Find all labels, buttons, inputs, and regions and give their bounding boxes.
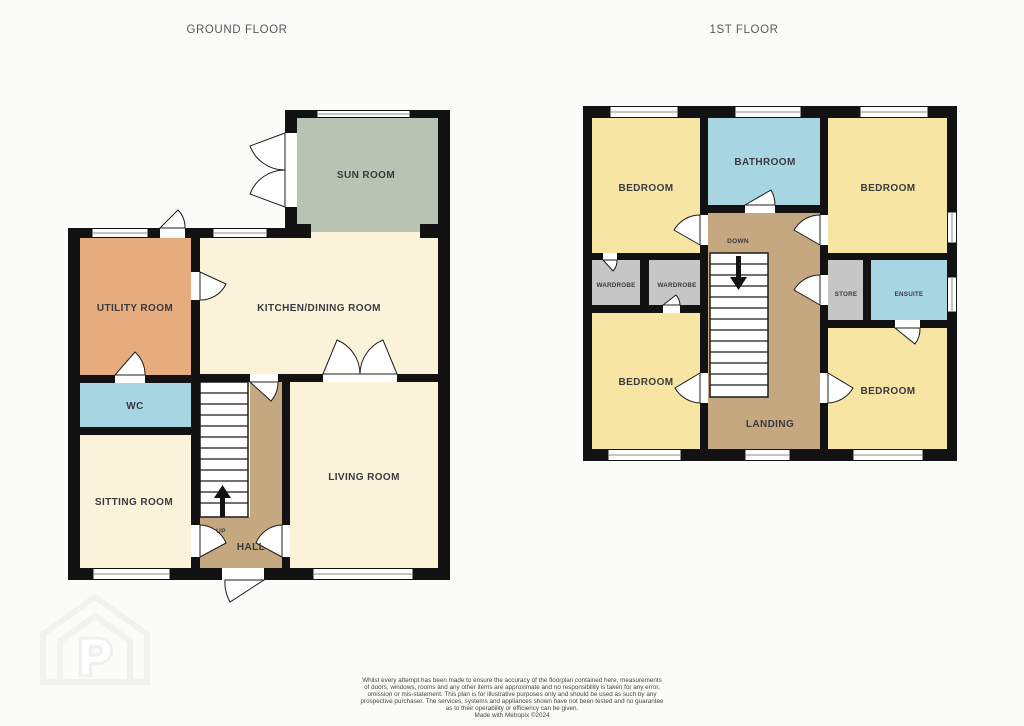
ground-floor-plan: SUN ROOM UTILITY ROOM KITCHEN/DINING ROO… [40, 95, 460, 610]
ensuite-label: ENSUITE [895, 291, 924, 298]
wardrobe-left-label: WARDROBE [596, 282, 635, 289]
bedroom-top-left-label: BEDROOM [618, 183, 673, 194]
sitting-room-label: SITTING ROOM [95, 497, 173, 508]
up-label: UP [216, 528, 226, 535]
sun-room-label: SUN ROOM [337, 170, 395, 181]
utility-room-label: UTILITY ROOM [97, 303, 173, 314]
wc-label: WC [126, 401, 143, 412]
room-store [828, 260, 863, 320]
ground-stairs [200, 382, 248, 517]
bedroom-bottom-right-label: BEDROOM [860, 386, 915, 397]
bedroom-bottom-left-label: BEDROOM [618, 377, 673, 388]
kitchen-dining-label: KITCHEN/DINING ROOM [257, 303, 381, 314]
disclaimer-line: omission or mis-statement. This plan is … [162, 691, 862, 698]
hall-label: HALL [237, 542, 265, 553]
disclaimer-line: as to their operability or efficiency ca… [162, 705, 862, 712]
wardrobe-right-label: WARDROBE [657, 282, 696, 289]
ground-floor-title: GROUND FLOOR [127, 24, 347, 36]
disclaimer-credit: Made with Metropix ©2024 [162, 712, 862, 719]
floorplan-page: GROUND FLOOR 1ST FLOOR [0, 0, 1024, 726]
first-stairs [710, 253, 768, 397]
down-label: DOWN [727, 238, 749, 245]
disclaimer-line: of doors, windows, rooms and any other i… [162, 684, 862, 691]
bedroom-top-right-label: BEDROOM [860, 183, 915, 194]
disclaimer-line: Whilst every attempt has been made to en… [162, 677, 862, 684]
sunroom-french-door-top [250, 133, 285, 170]
room-kitchen-sunroom-opening [311, 232, 420, 238]
first-floor-title: 1ST FLOOR [634, 24, 854, 36]
utility-exterior-door [160, 210, 185, 228]
metropix-logo-watermark: P [38, 590, 158, 708]
disclaimer-text: Whilst every attempt has been made to en… [162, 677, 862, 719]
sunroom-french-door-bottom [250, 170, 285, 207]
first-floor-plan: BEDROOM BATHROOM BEDROOM WARDROBE WARDRO… [575, 95, 965, 470]
store-label: STORE [835, 291, 858, 298]
room-ensuite [871, 260, 947, 320]
watermark-letter: P [78, 629, 111, 685]
living-room-label: LIVING ROOM [328, 472, 400, 483]
landing-label: LANDING [746, 419, 794, 430]
bathroom-label: BATHROOM [734, 157, 795, 168]
disclaimer-line: prospective purchaser. The services, sys… [162, 698, 862, 705]
front-door [225, 580, 264, 602]
